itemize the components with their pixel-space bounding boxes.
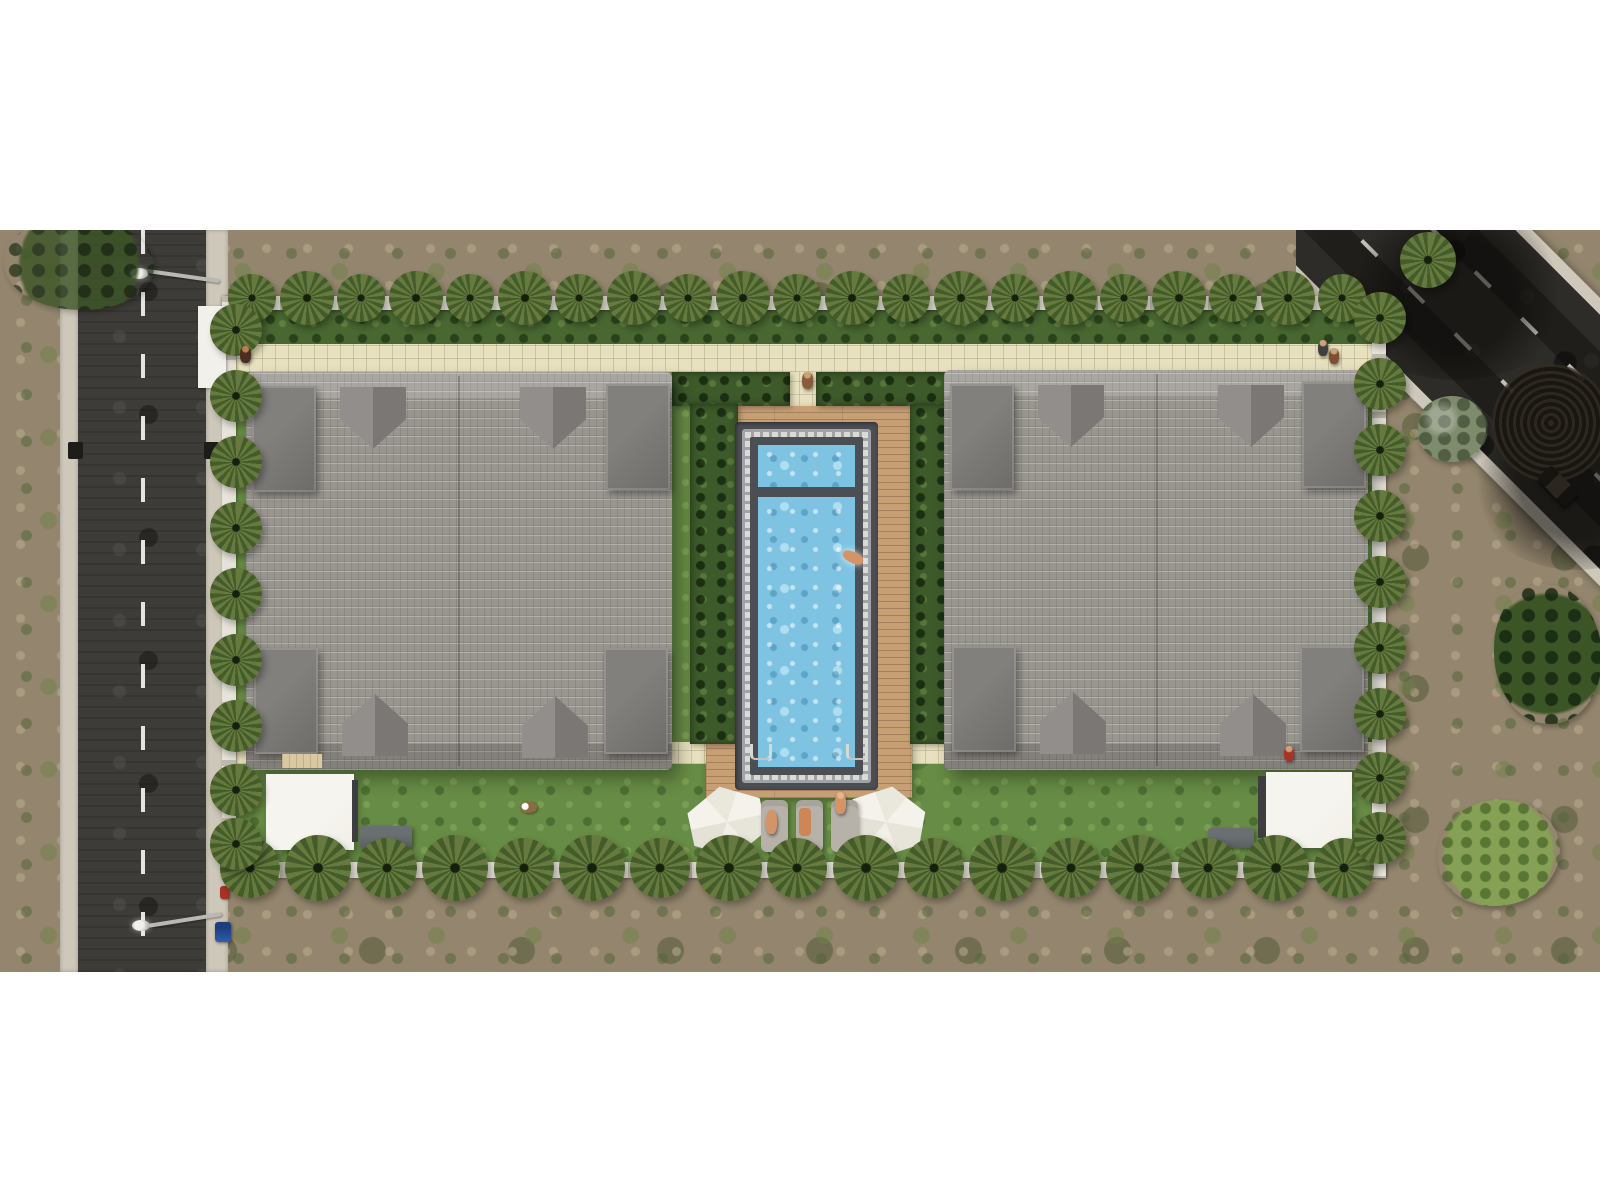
hedge-west-column [690, 404, 738, 744]
palm-tree [1354, 688, 1406, 740]
palm-tree [1041, 838, 1101, 898]
palm-tree [494, 838, 554, 898]
villa-east [944, 370, 1368, 770]
scrub-tree-dark [1494, 584, 1600, 724]
palm-tree [1354, 622, 1406, 674]
palm-tree [422, 835, 488, 901]
palm-tree [1354, 556, 1406, 608]
scrub-tree-light [1438, 800, 1560, 906]
palm-tree [833, 835, 899, 901]
palm-tree [1354, 812, 1406, 864]
pool-ladder-left [750, 744, 772, 760]
pool-water [758, 445, 855, 767]
palm-tree [280, 271, 334, 325]
canopy-east-frame [1258, 776, 1266, 838]
palm-tree [210, 436, 262, 488]
palm-tree [1209, 274, 1257, 322]
aerial-site-render [0, 230, 1600, 972]
palm-tree [559, 835, 625, 901]
palm-tree [555, 274, 603, 322]
west-street-centerline [141, 230, 145, 972]
villa-west-tower-sw [254, 648, 318, 754]
villa-east-ridge [1156, 374, 1158, 766]
aerial-render-page [0, 0, 1600, 1200]
villa-west-tower-se [604, 648, 668, 754]
north-paver-walkway [236, 344, 1372, 372]
palm-tree [969, 835, 1035, 901]
palm-tree [904, 838, 964, 898]
villa-east-tower-se [1300, 646, 1364, 752]
palm-tree [1100, 274, 1148, 322]
palm-tree [285, 835, 351, 901]
palm-tree [1152, 271, 1206, 325]
hedge-north-east [816, 372, 956, 406]
person-on-lounger [766, 810, 777, 834]
palm-tree [696, 835, 762, 901]
towel-on-lounger [799, 808, 811, 836]
pool-inner-frame [750, 437, 863, 775]
palm-tree [210, 568, 262, 620]
dog-on-lawn [520, 802, 537, 813]
swimming-pool [735, 422, 878, 790]
palm-tree [1243, 835, 1309, 901]
palm-tree [337, 274, 385, 322]
olive-tree [1416, 396, 1488, 462]
manhole-stain [1492, 364, 1600, 482]
pool-tile-border [742, 429, 871, 783]
pool-divider-bridge [758, 487, 855, 497]
street-lamp-south-head [132, 920, 150, 931]
hedge-north-west [672, 372, 790, 406]
palm-tree [210, 764, 262, 816]
villa-west-tower-ne [606, 384, 670, 490]
storm-drain-left [68, 442, 83, 459]
villa-west-ridge [458, 376, 460, 766]
person-pool-entry [802, 372, 813, 389]
palm-tree [825, 271, 879, 325]
palm-tree [1354, 424, 1406, 476]
palm-tree [991, 274, 1039, 322]
palm-tree [716, 271, 770, 325]
waste-bin [215, 922, 231, 942]
palm-tree [630, 838, 690, 898]
palm-tree [1354, 358, 1406, 410]
palm-tree [1400, 232, 1456, 288]
palm-tree [210, 370, 262, 422]
villa-east-tower-sw [952, 646, 1016, 752]
person-northeast-corner-2 [1329, 348, 1339, 364]
palm-tree [210, 502, 262, 554]
canopy-west-frame [352, 780, 358, 842]
palm-tree [498, 271, 552, 325]
palm-tree [1106, 835, 1172, 901]
person-walking-north-path [240, 346, 251, 363]
palm-tree [607, 271, 661, 325]
palm-tree [210, 634, 262, 686]
palm-tree [1043, 271, 1097, 325]
palm-tree [773, 274, 821, 322]
palm-tree [1261, 271, 1315, 325]
west-sidewalk-left [60, 230, 78, 972]
palm-tree [357, 838, 417, 898]
palm-tree [882, 274, 930, 322]
person-northeast-corner-1 [1318, 340, 1328, 356]
villa-east-tower-nw [950, 384, 1014, 490]
garden-step-deck [282, 754, 322, 768]
palm-tree [934, 271, 988, 325]
palm-tree [767, 838, 827, 898]
palm-tree [210, 304, 262, 356]
palm-tree [389, 271, 443, 325]
palm-tree [1178, 838, 1238, 898]
pool-ladder-right [846, 744, 868, 760]
person-on-deck-edge [835, 792, 846, 814]
palm-tree [446, 274, 494, 322]
palm-tree [210, 700, 262, 752]
palm-tree [210, 818, 262, 870]
palm-tree [1354, 490, 1406, 542]
palm-tree [664, 274, 712, 322]
palm-tree [1354, 752, 1406, 804]
person-southeast-path [1284, 746, 1294, 761]
villa-east-tower-ne [1302, 382, 1366, 488]
villa-west-tower-nw [252, 386, 316, 492]
palm-tree [1354, 292, 1406, 344]
villa-west [246, 372, 672, 770]
